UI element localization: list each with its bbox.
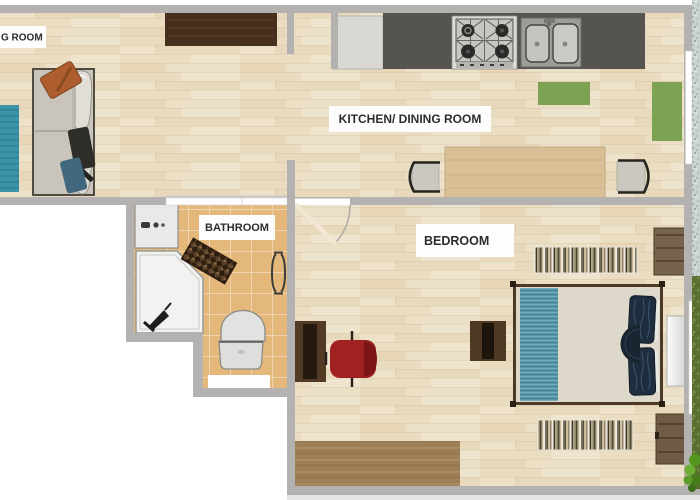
svg-text:BEDROOM: BEDROOM xyxy=(424,234,489,248)
svg-text:G ROOM: G ROOM xyxy=(1,33,43,44)
svg-text:KITCHEN/ DINING ROOM: KITCHEN/ DINING ROOM xyxy=(339,112,482,126)
svg-text:BATHROOM: BATHROOM xyxy=(205,222,269,234)
